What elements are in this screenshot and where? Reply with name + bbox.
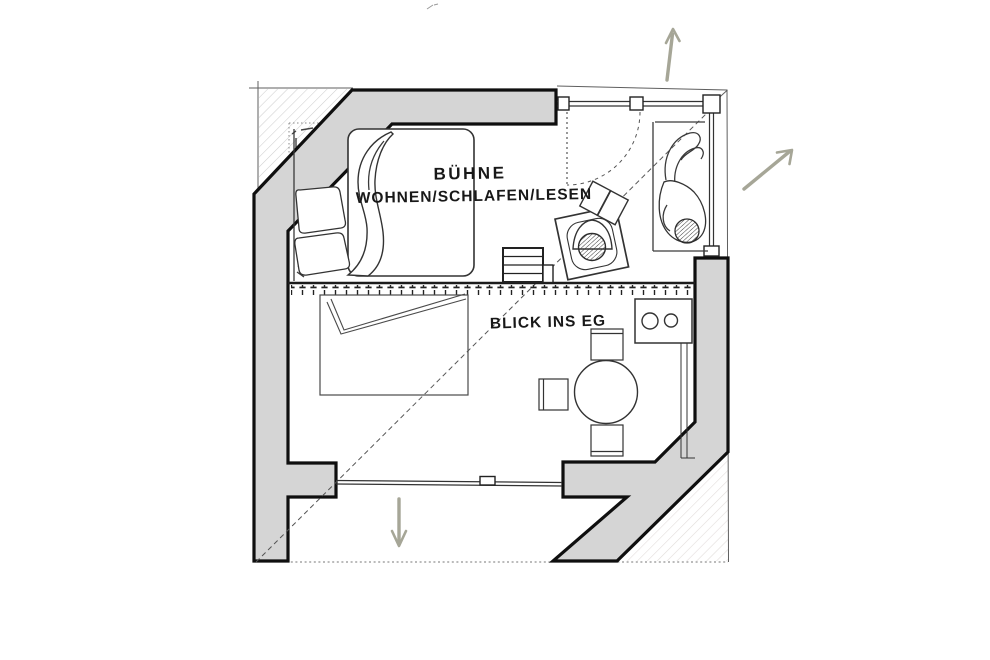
floor-plan-svg: BÜHNE WOHNEN/SCHLAFEN/LESEN BLICK INS EG <box>0 0 990 660</box>
arrow-up-icon <box>666 29 680 80</box>
arrow-up-right-icon <box>744 150 792 189</box>
label-stage-line2: WOHNEN/SCHLAFEN/LESEN <box>356 186 593 207</box>
door-swing-arc <box>567 112 640 185</box>
pillow-top <box>296 187 346 233</box>
void-opening <box>320 294 468 395</box>
stray-pen-mark <box>427 4 438 9</box>
void-check-lines <box>327 294 466 334</box>
stairs <box>503 248 553 283</box>
label-stage-line1: BÜHNE <box>433 163 506 183</box>
dining-area <box>539 329 638 456</box>
lounging-person-legs <box>665 133 703 185</box>
lounging-person-head <box>675 219 699 243</box>
cooktop-counter <box>635 299 692 343</box>
floor-plan-drawing: BÜHNE WOHNEN/SCHLAFEN/LESEN BLICK INS EG <box>0 0 990 660</box>
lounging-person <box>659 133 705 243</box>
window-bench <box>653 122 708 251</box>
glass-wall-bottom <box>336 481 562 487</box>
label-view-note: BLICK INS EG <box>490 312 607 332</box>
pillow-bottom <box>295 233 350 275</box>
dining-table <box>575 361 638 424</box>
arrow-down-icon <box>392 499 406 546</box>
sitting-person-head <box>579 234 606 261</box>
glass-wall-right <box>710 113 714 248</box>
door-swing <box>567 112 640 185</box>
railing <box>288 283 695 295</box>
